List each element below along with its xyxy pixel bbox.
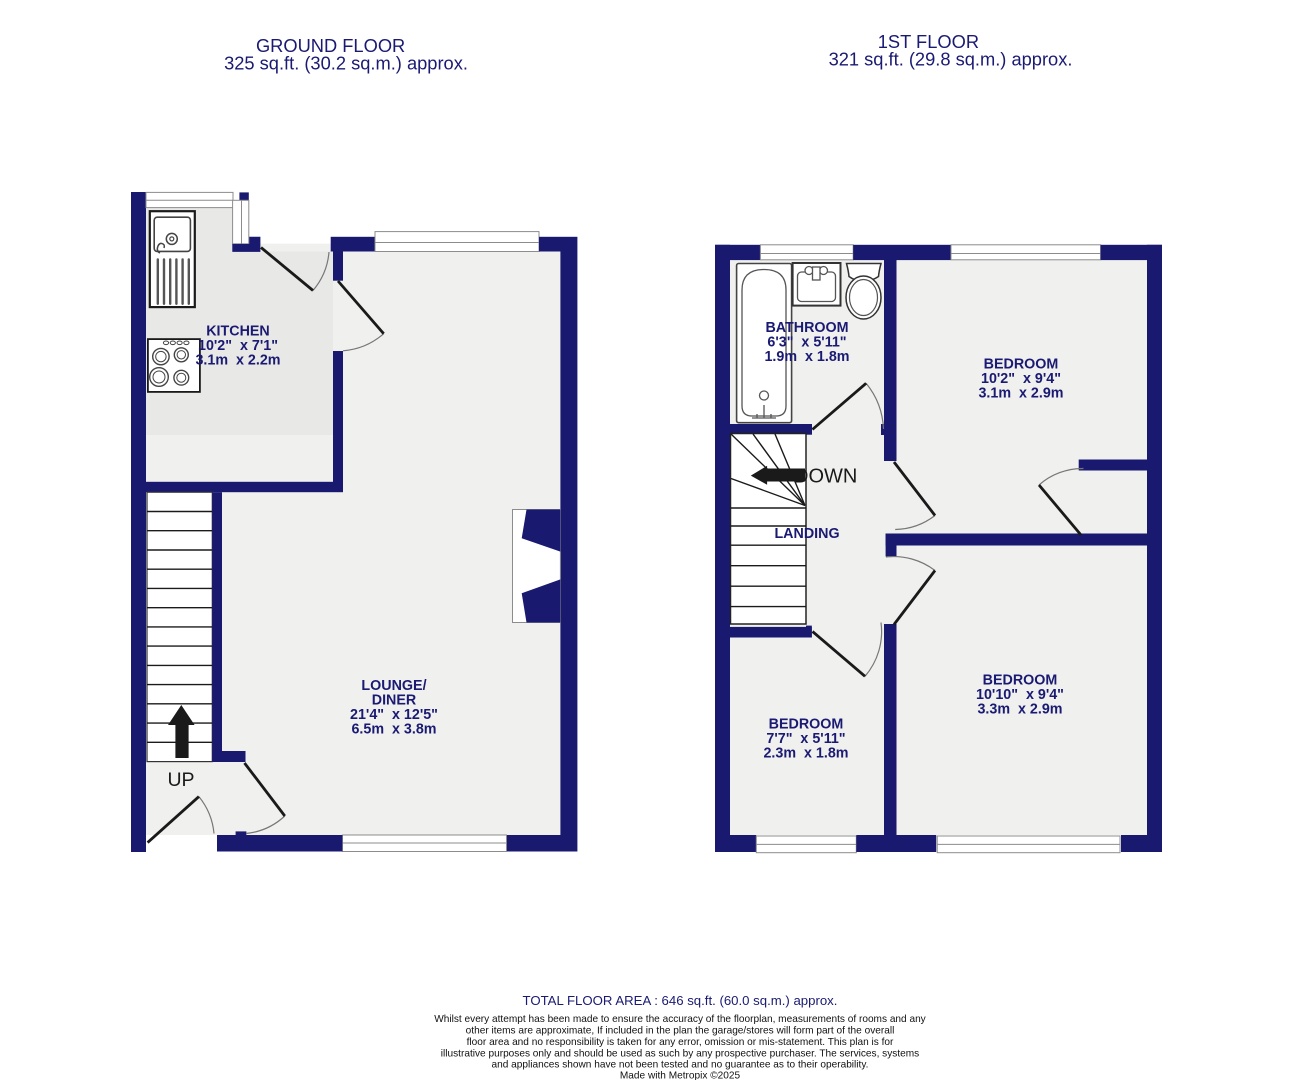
- svg-text:other items are approximate, I: other items are approximate, If included…: [466, 1025, 895, 1036]
- svg-text:6.5m x 3.8m: 6.5m x 3.8m: [351, 722, 436, 738]
- svg-text:illustrative purposes only and: illustrative purposes only and should be…: [441, 1048, 919, 1059]
- svg-text:321 sq.ft. (29.8 sq.m.) approx: 321 sq.ft. (29.8 sq.m.) approx.: [829, 49, 1073, 70]
- svg-text:and appliances shown have not: and appliances shown have not been teste…: [492, 1060, 869, 1071]
- svg-text:3.1m x 2.9m: 3.1m x 2.9m: [978, 386, 1063, 402]
- svg-text:floor area and no responsibili: floor area and no responsibility is take…: [467, 1037, 894, 1048]
- svg-text:2.3m x 1.8m: 2.3m x 1.8m: [763, 746, 848, 762]
- svg-text:3.3m x 2.9m: 3.3m x 2.9m: [977, 702, 1062, 718]
- svg-text:UP: UP: [167, 769, 194, 791]
- svg-text:1.9m x 1.8m: 1.9m x 1.8m: [764, 349, 849, 365]
- svg-text:325 sq.ft. (30.2 sq.m.) approx: 325 sq.ft. (30.2 sq.m.) approx.: [224, 52, 468, 73]
- svg-text:LANDING: LANDING: [774, 526, 839, 542]
- svg-text:TOTAL FLOOR AREA : 646 sq.ft.: TOTAL FLOOR AREA : 646 sq.ft. (60.0 sq.m…: [523, 993, 838, 1008]
- svg-text:Whilst every attempt has been: Whilst every attempt has been made to en…: [434, 1014, 926, 1025]
- svg-text:3.1m x 2.2m: 3.1m x 2.2m: [195, 353, 280, 369]
- svg-text:Made with Metropix ©2025: Made with Metropix ©2025: [620, 1070, 741, 1080]
